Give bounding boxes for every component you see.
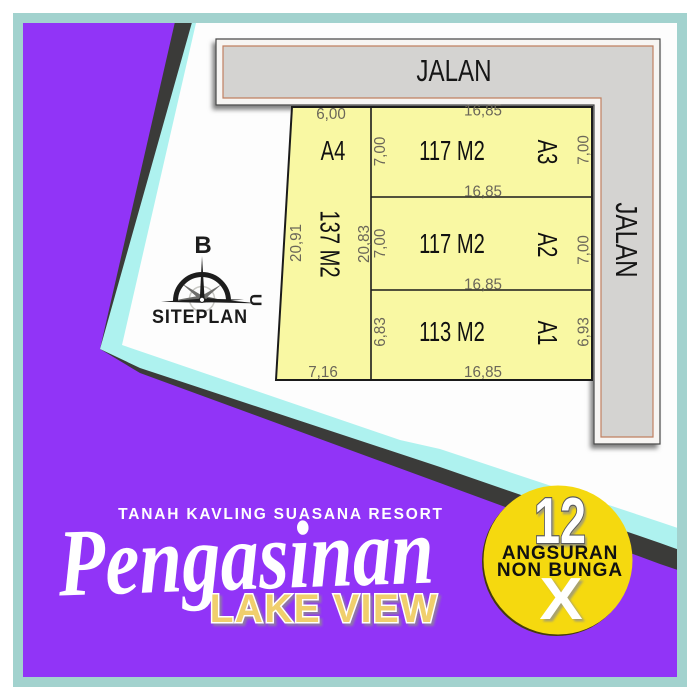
svg-text:JALAN: JALAN xyxy=(609,202,644,277)
svg-text:U: U xyxy=(246,294,265,306)
svg-text:6,93: 6,93 xyxy=(575,317,592,347)
svg-text:117 M2: 117 M2 xyxy=(419,136,485,167)
svg-text:113 M2: 113 M2 xyxy=(419,317,485,348)
svg-text:20,83: 20,83 xyxy=(356,225,373,263)
svg-text:16,85: 16,85 xyxy=(464,183,502,200)
svg-text:7,00: 7,00 xyxy=(372,228,389,258)
svg-text:A3: A3 xyxy=(531,140,562,165)
svg-text:6,83: 6,83 xyxy=(372,317,389,347)
svg-text:SITEPLAN: SITEPLAN xyxy=(152,305,248,327)
svg-text:X: X xyxy=(539,567,582,633)
svg-text:A2: A2 xyxy=(531,233,562,258)
svg-text:B: B xyxy=(194,232,211,259)
svg-text:7,00: 7,00 xyxy=(372,136,389,166)
svg-text:16,85: 16,85 xyxy=(464,364,502,381)
svg-text:7,00: 7,00 xyxy=(575,235,592,265)
svg-text:7,00: 7,00 xyxy=(575,135,592,165)
svg-text:137 M2: 137 M2 xyxy=(313,210,344,277)
svg-text:A1: A1 xyxy=(531,321,562,346)
svg-text:16,85: 16,85 xyxy=(464,276,502,293)
svg-text:20,91: 20,91 xyxy=(288,224,305,262)
svg-text:A4: A4 xyxy=(321,136,346,167)
svg-text:16,85: 16,85 xyxy=(464,102,502,119)
svg-text:JALAN: JALAN xyxy=(416,53,491,88)
svg-text:LAKE VIEW: LAKE VIEW xyxy=(210,586,439,631)
svg-text:7,16: 7,16 xyxy=(308,364,338,381)
svg-text:117 M2: 117 M2 xyxy=(419,229,485,260)
svg-text:6,00: 6,00 xyxy=(316,106,346,123)
